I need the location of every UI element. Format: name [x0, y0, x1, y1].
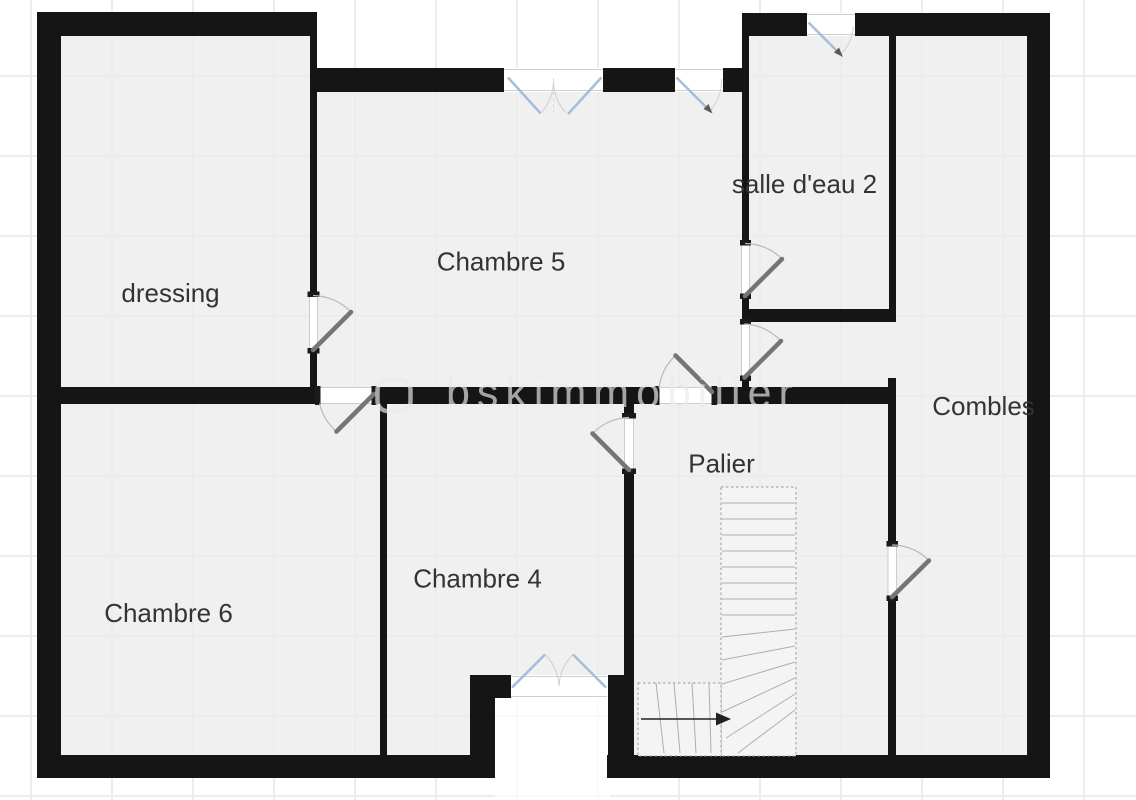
svg-text:dressing: dressing	[121, 278, 219, 308]
svg-text:Palier: Palier	[688, 449, 755, 479]
svg-text:bskimmobilier: bskimmobilier	[446, 369, 800, 417]
svg-text:Chambre 6: Chambre 6	[104, 598, 233, 628]
svg-text:Chambre 5: Chambre 5	[437, 247, 566, 277]
svg-text:salle d'eau 2: salle d'eau 2	[732, 169, 877, 199]
svg-text:Combles: Combles	[932, 391, 1035, 421]
svg-text:Chambre 4: Chambre 4	[413, 564, 542, 594]
